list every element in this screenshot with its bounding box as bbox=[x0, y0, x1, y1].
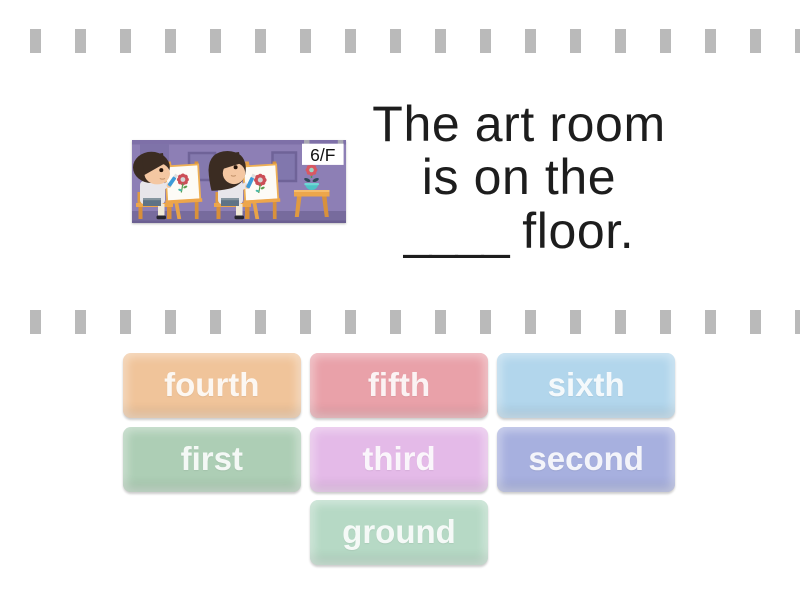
svg-text:6/F: 6/F bbox=[310, 145, 335, 165]
